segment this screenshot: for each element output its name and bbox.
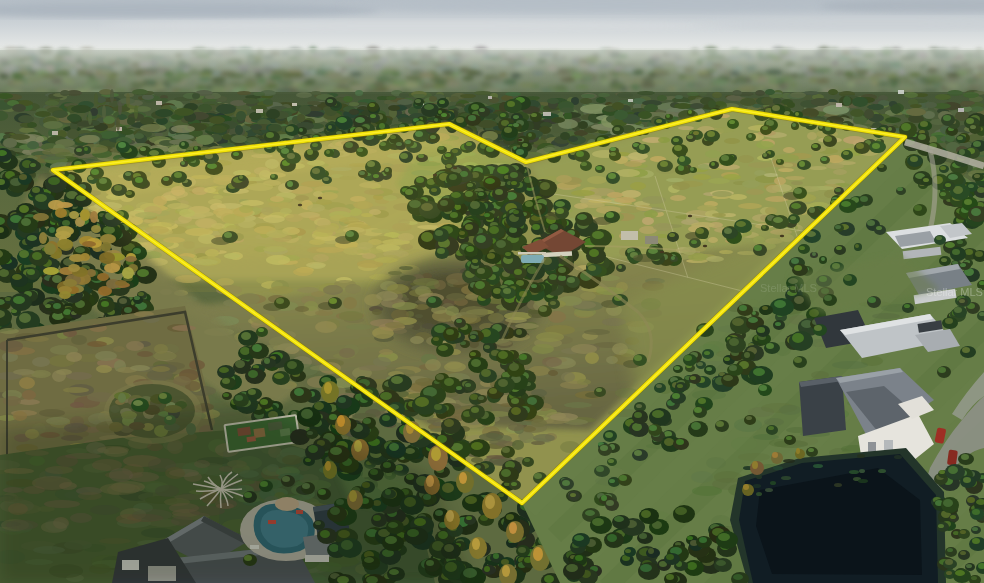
svg-text:Stellar MLS: Stellar MLS bbox=[760, 282, 817, 294]
svg-text:Stellar MLS: Stellar MLS bbox=[926, 286, 983, 298]
